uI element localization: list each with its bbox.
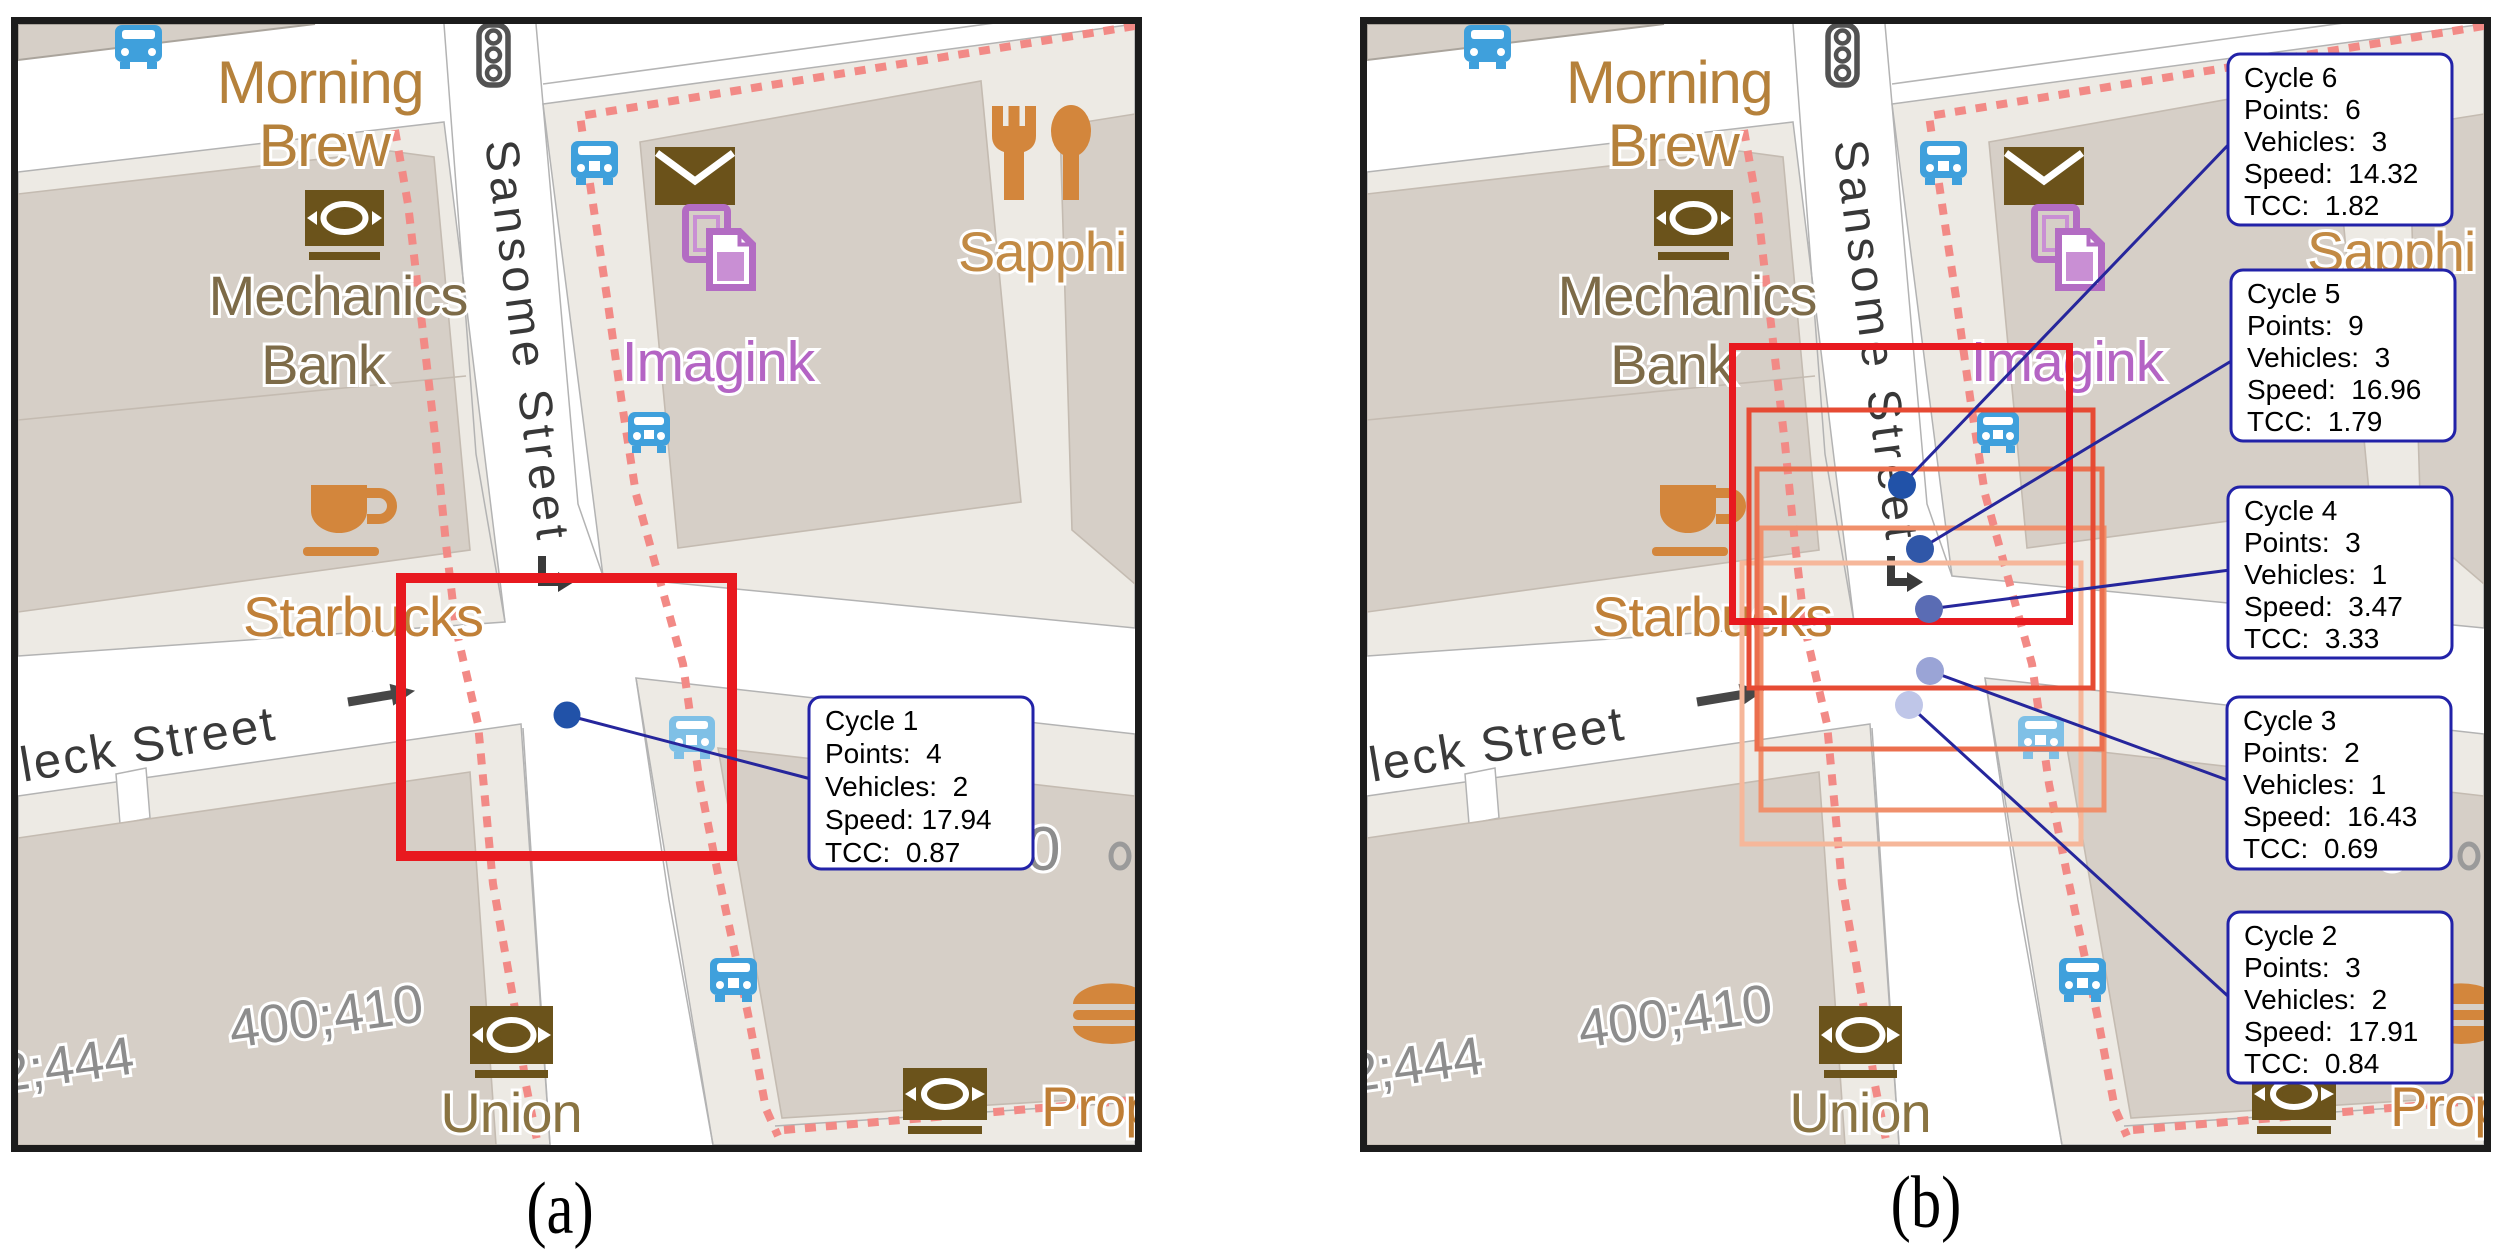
svg-text:Points: 6: Points: 6 — [2244, 94, 2361, 125]
svg-text:Cycle 2: Cycle 2 — [2244, 920, 2337, 951]
svg-text:Brew: Brew — [259, 112, 392, 179]
svg-text:Speed: 3.47: Speed: 3.47 — [2244, 591, 2403, 622]
svg-text:Vehicles: 1: Vehicles: 1 — [2244, 559, 2387, 590]
svg-text:TCC: 0.84: TCC: 0.84 — [2244, 1048, 2379, 1079]
svg-text:Vehicles: 3: Vehicles: 3 — [2247, 342, 2390, 373]
svg-text:Speed: 14.32: Speed: 14.32 — [2244, 158, 2418, 189]
svg-text:Speed: 16.43: Speed: 16.43 — [2243, 801, 2417, 832]
svg-text:Sapphi: Sapphi — [958, 220, 1126, 283]
svg-text:Vehicles: 2: Vehicles: 2 — [825, 771, 968, 802]
svg-text:Cycle 5: Cycle 5 — [2247, 278, 2340, 309]
svg-text:Points: 3: Points: 3 — [2244, 527, 2361, 558]
svg-text:Speed: 16.96: Speed: 16.96 — [2247, 374, 2421, 405]
svg-text:Points: 3: Points: 3 — [2244, 952, 2361, 983]
svg-text:Union: Union — [440, 1081, 581, 1144]
svg-text:Prop: Prop — [1041, 1075, 1135, 1138]
svg-text:Vehicles: 3: Vehicles: 3 — [2244, 126, 2387, 157]
svg-text:Speed: 17.94: Speed: 17.94 — [825, 804, 992, 835]
svg-text:Points: 9: Points: 9 — [2247, 310, 2364, 341]
svg-text:TCC: 1.82: TCC: 1.82 — [2244, 190, 2379, 221]
svg-text:Imagink: Imagink — [622, 330, 816, 394]
svg-text:Cycle 1: Cycle 1 — [825, 705, 918, 736]
svg-text:Points: 4: Points: 4 — [825, 738, 942, 769]
svg-text:Cycle 3: Cycle 3 — [2243, 705, 2336, 736]
svg-text:Speed: 17.91: Speed: 17.91 — [2244, 1016, 2418, 1047]
svg-text:Cycle 6: Cycle 6 — [2244, 62, 2337, 93]
svg-text:TCC: 3.33: TCC: 3.33 — [2244, 623, 2379, 654]
svg-text:TCC: 0.69: TCC: 0.69 — [2243, 833, 2378, 864]
svg-text:Morning: Morning — [217, 49, 423, 116]
svg-text:Bank: Bank — [261, 333, 387, 396]
svg-text:Vehicles: 2: Vehicles: 2 — [2244, 984, 2387, 1015]
svg-text:Starbucks: Starbucks — [243, 585, 483, 648]
svg-text:Cycle 4: Cycle 4 — [2244, 495, 2337, 526]
svg-text:Mechanics: Mechanics — [209, 264, 468, 327]
svg-text:Vehicles: 1: Vehicles: 1 — [2243, 769, 2386, 800]
svg-text:Points: 2: Points: 2 — [2243, 737, 2360, 768]
svg-text:TCC: 1.79: TCC: 1.79 — [2247, 406, 2382, 437]
svg-text:TCC: 0.87: TCC: 0.87 — [825, 837, 960, 868]
